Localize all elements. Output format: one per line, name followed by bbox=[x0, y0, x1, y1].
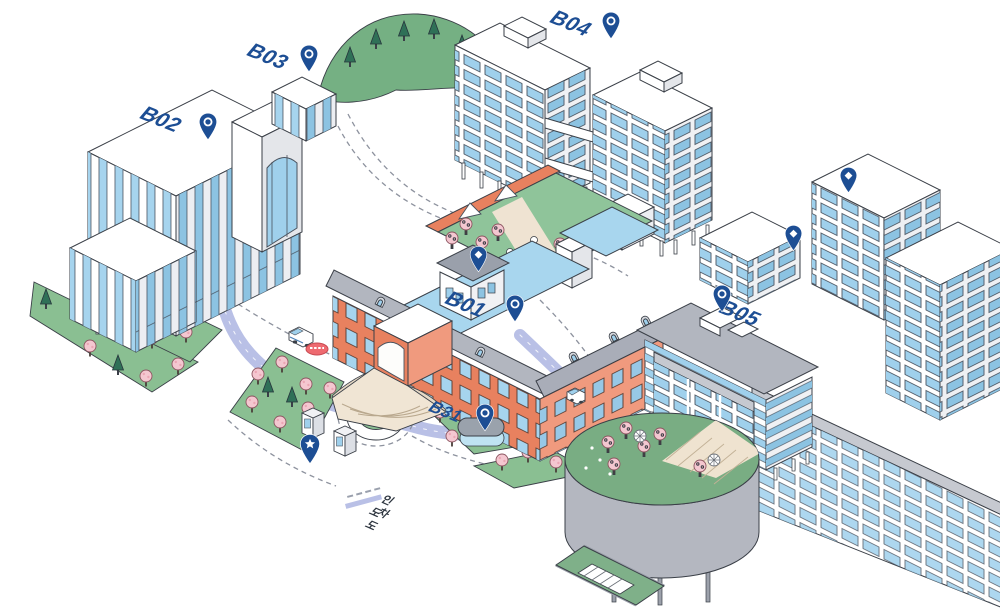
campus-map-illustration bbox=[0, 0, 1000, 610]
building-b01-graphic bbox=[326, 165, 669, 461]
bus-stop-sign bbox=[306, 343, 328, 355]
pin-b03[interactable] bbox=[299, 44, 319, 73]
building-b02-graphic bbox=[70, 90, 302, 352]
pin-b01[interactable] bbox=[505, 294, 525, 323]
pin-b31[interactable] bbox=[475, 403, 495, 432]
pin-facility-east-2[interactable] bbox=[839, 166, 858, 194]
pin-facility-courtyard[interactable] bbox=[469, 245, 488, 273]
pin-b04[interactable] bbox=[601, 11, 621, 40]
pin-b02[interactable] bbox=[198, 112, 218, 141]
campus-map: B02 B03 B04 B01 B05 B31 인도 차도 bbox=[0, 0, 1000, 610]
amphitheater-building-graphic bbox=[556, 413, 762, 605]
pin-landmark-star[interactable] bbox=[299, 433, 321, 465]
pin-facility-east-1[interactable] bbox=[784, 224, 803, 252]
kiosk bbox=[334, 426, 356, 456]
pin-b05[interactable] bbox=[712, 284, 732, 313]
shuttle-bus bbox=[289, 327, 313, 347]
